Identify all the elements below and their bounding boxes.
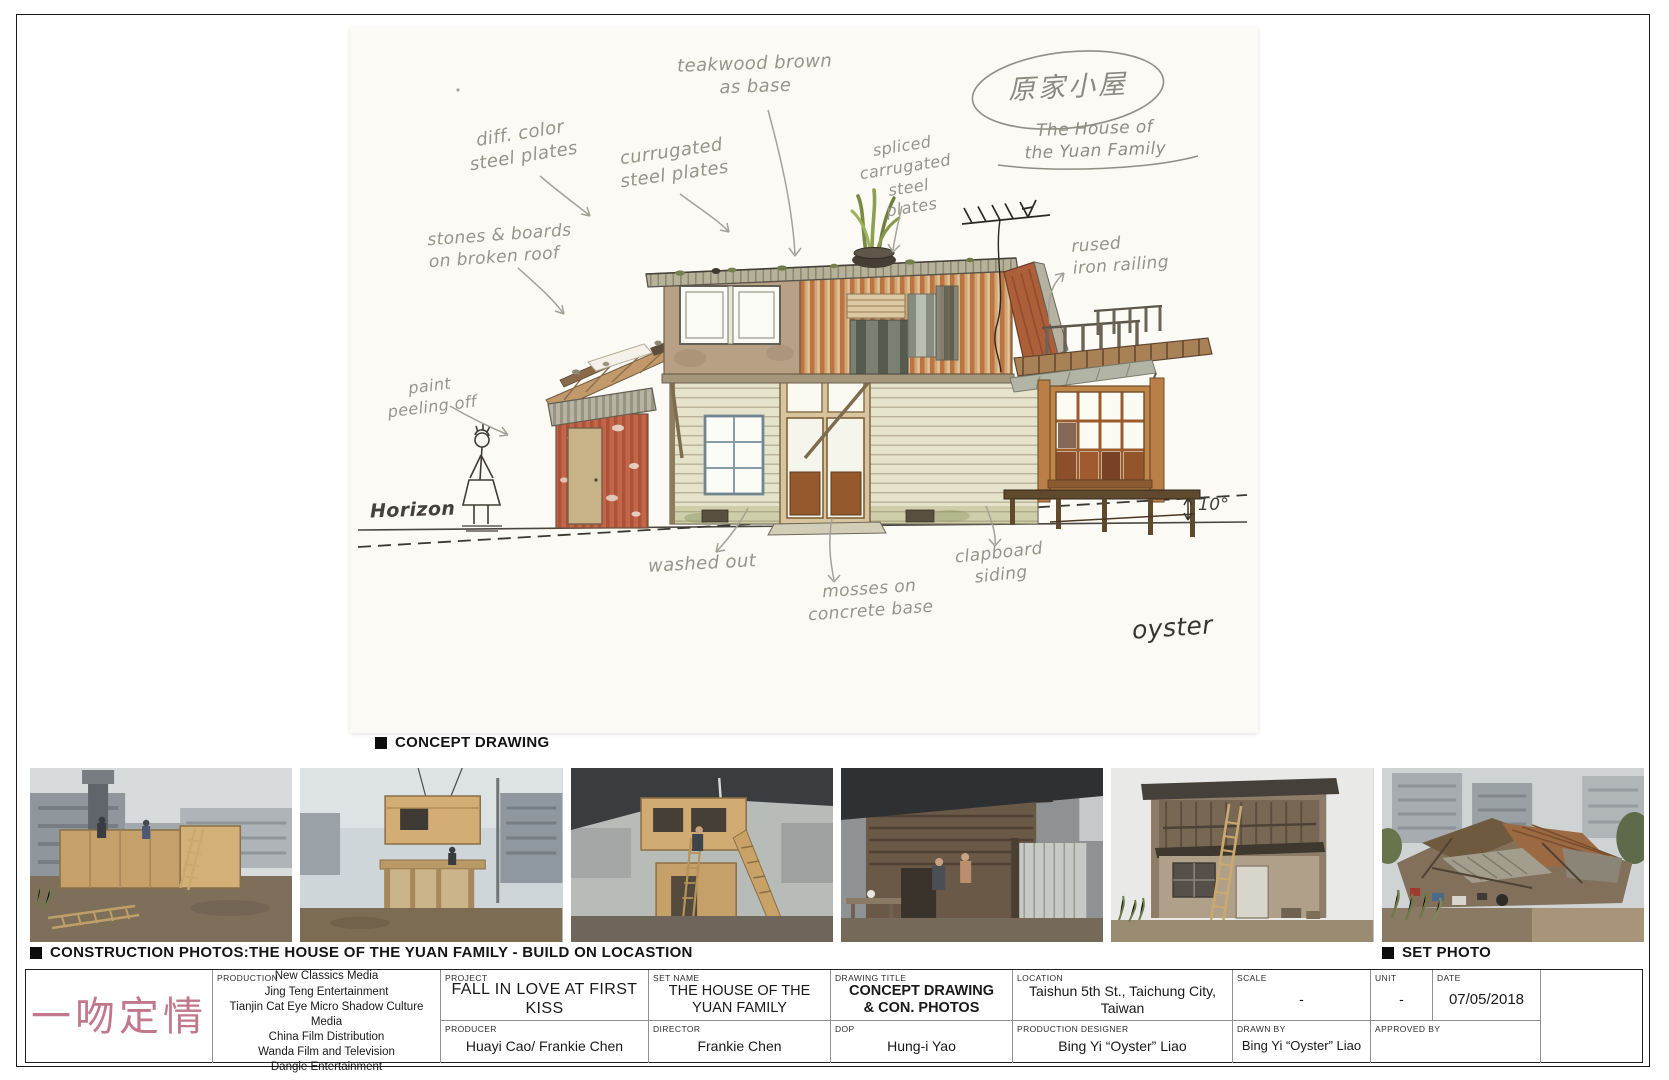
date-cell: DATE 07/05/2018: [1433, 970, 1541, 1021]
concept-paper: teakwood brown as base diff. color steel…: [350, 28, 1258, 733]
producer-label: PRODUCER: [445, 1024, 497, 1034]
director-label: DIRECTOR: [653, 1024, 700, 1034]
production-label: PRODUCTION: [217, 973, 278, 983]
director-cell: DIRECTOR Frankie Chen: [649, 1021, 831, 1063]
location-cell: LOCATION Taishun 5th St., Taichung City,…: [1013, 970, 1233, 1021]
dop-cell: DOP Hung-i Yao: [831, 1021, 1013, 1063]
photo-strip: [30, 768, 1644, 942]
film-logo-cell: 一吻定情: [26, 970, 213, 1063]
dop-value: Hung-i Yao: [887, 1029, 956, 1054]
director-value: Frankie Chen: [697, 1029, 781, 1054]
producer-cell: PRODUCER Huayi Cao/ Frankie Chen: [441, 1021, 649, 1063]
concept-caption-label: CONCEPT DRAWING: [395, 734, 550, 751]
production-designer-label: PRODUCTION DESIGNER: [1017, 1024, 1129, 1034]
set-photo-caption-label: SET PHOTO: [1402, 944, 1491, 961]
square-bullet-icon: [1382, 947, 1394, 959]
scale-cell: SCALE -: [1233, 970, 1371, 1021]
date-value: 07/05/2018: [1449, 982, 1524, 1008]
square-bullet-icon: [375, 737, 387, 749]
annotation-teakwood: teakwood brown as base: [659, 49, 851, 102]
construction-photo-first-floor-walls: [30, 768, 292, 942]
unit-label: UNIT: [1375, 973, 1396, 983]
approved-by-label: APPROVED BY: [1375, 1024, 1440, 1034]
project-label: PROJECT: [445, 973, 487, 983]
blank-cell: [1541, 970, 1640, 1063]
drawing-title-cell: DRAWING TITLE CONCEPT DRAWING & CON. PHO…: [831, 970, 1013, 1021]
location-label: LOCATION: [1017, 973, 1063, 983]
design-sheet: teakwood brown as base diff. color steel…: [0, 0, 1669, 1080]
production-designer-cell: PRODUCTION DESIGNER Bing Yi “Oyster” Lia…: [1013, 1021, 1233, 1063]
unit-cell: UNIT -: [1371, 970, 1433, 1021]
signature-oyster: oyster: [1131, 609, 1214, 647]
set-name-cell: SET NAME THE HOUSE OF THE YUAN FAMILY: [649, 970, 831, 1021]
set-photo-caption: SET PHOTO: [1382, 944, 1491, 961]
annotation-horizon: Horizon: [370, 497, 456, 525]
project-cell: PROJECT FALL IN LOVE AT FIRST KISS: [441, 970, 649, 1021]
drawn-by-cell: DRAWN BY Bing Yi “Oyster” Liao: [1233, 1021, 1371, 1063]
construction-photo-under-canopy: [571, 768, 833, 942]
square-bullet-icon: [30, 947, 42, 959]
construction-photo-aged-facade: [1111, 768, 1373, 942]
set-name-label: SET NAME: [653, 973, 700, 983]
scale-value: -: [1299, 982, 1304, 1007]
approved-by-cell: APPROVED BY: [1371, 1021, 1541, 1063]
annotation-angle: 10°: [1198, 494, 1229, 516]
scale-label: SCALE: [1237, 973, 1267, 983]
set-photo-demolished-house: [1382, 768, 1644, 942]
concept-drawing-caption: CONCEPT DRAWING: [375, 734, 550, 751]
unit-value: -: [1399, 982, 1404, 1007]
drawn-by-label: DRAWN BY: [1237, 1024, 1286, 1034]
date-label: DATE: [1437, 973, 1461, 983]
construction-photo-cladding: [841, 768, 1103, 942]
title-block: 一吻定情 PRODUCTION New Classics Media Jing …: [25, 969, 1643, 1063]
construction-photo-crane-lift: [300, 768, 562, 942]
dop-label: DOP: [835, 1024, 855, 1034]
drawing-title-label: DRAWING TITLE: [835, 973, 906, 983]
production-cell: PRODUCTION New Classics Media Jing Teng …: [213, 970, 441, 1063]
film-logo: 一吻定情: [31, 994, 207, 1040]
annotation-rusted: rused iron railing: [1071, 228, 1184, 280]
house-title-en: The House of the Yuan Family: [989, 114, 1200, 165]
